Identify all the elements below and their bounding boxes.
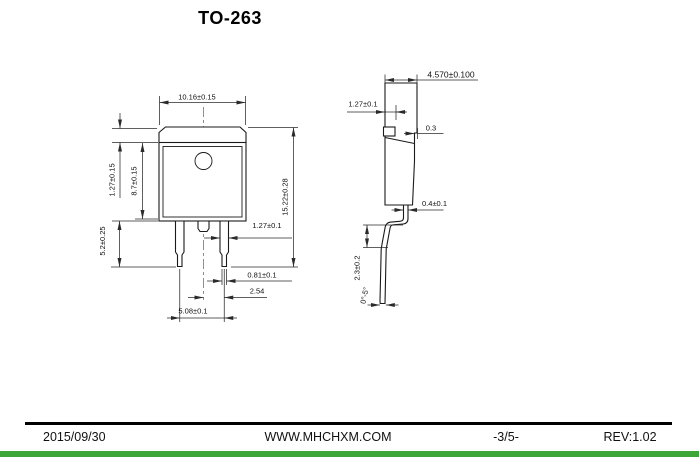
front-lead-right [220,221,229,267]
front-view: 10.16±0.15 1.27±0.15 8.7±0.15 [98,93,298,323]
footer-accent-bar [0,451,699,457]
dim-label-step: 0.3 [426,124,436,133]
side-tab-step [384,127,396,136]
footer-website: WWW.MHCHXM.COM [264,430,391,444]
dim-label-tab-thickness: 1.27±0.1 [348,100,377,109]
dim-side-foot-height: 2.3±0.2 [353,225,404,280]
dim-side-foot-angle: 0°-5° [358,286,398,305]
dim-label-lead-width: 1.27±0.1 [252,221,281,230]
dim-label-lead-length: 5.2±0.25 [98,226,107,255]
dim-label-lead-pitch: 2.54 [250,287,265,296]
footer-page-number: -3/5- [493,430,519,444]
dim-label-overall-depth: 4.570±0.100 [427,70,474,80]
dim-front-body-width: 10.16±0.15 [160,93,246,126]
front-tab-outline [159,127,246,143]
dim-front-lead-width: 1.27±0.1 [204,221,292,238]
front-lead-left [176,221,185,267]
dim-front-lead-length: 5.2±0.25 [98,221,176,267]
dim-label-overall-height: 15.22±0.28 [281,178,290,215]
dim-label-lead-tip-width: 0.81±0.1 [247,271,276,280]
dim-label-tab-height: 1.27±0.15 [108,163,117,196]
dim-label-lead-span: 5.08±0.1 [178,307,207,316]
dim-label-foot-height: 2.3±0.2 [353,256,362,281]
dim-front-lead-tip-width: 0.81±0.1 [207,269,292,285]
footer-date: 2015/09/30 [43,430,106,444]
footer-revision: REV:1.02 [603,430,656,444]
footer-divider [25,422,672,425]
datasheet-page: TO-263 10.16±0.15 [0,0,699,457]
front-body-outline [159,143,246,222]
dim-label-lead-thickness: 0.4±0.1 [422,199,447,208]
dim-label-body-height: 8.7±0.15 [130,166,139,195]
dim-label-body-width: 10.16±0.15 [178,93,215,102]
side-body-outline [385,83,417,205]
side-view: 4.570±0.100 1.27±0.1 0.3 0.4± [347,70,478,306]
package-outline-drawing: 10.16±0.15 1.27±0.15 8.7±0.15 [0,0,699,457]
dim-label-foot-angle: 0°-5° [358,286,370,304]
front-lead-center [198,221,209,232]
side-lead [380,205,408,304]
dim-front-body-height: 8.7±0.15 [130,143,159,219]
